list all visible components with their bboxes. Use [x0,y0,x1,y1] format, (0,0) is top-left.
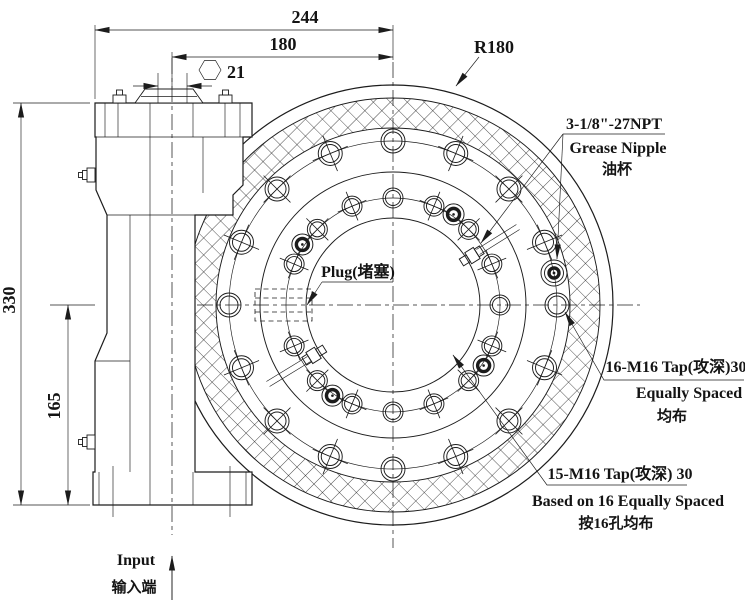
leader-plug [307,282,322,305]
cap-bolt-right [219,90,232,103]
dim-r180: R180 [474,37,514,57]
side-grease-nipple-upper [79,168,96,182]
dim-180: 180 [270,34,297,54]
input-cn-label: 输入端 [111,578,156,596]
housing-side-view [79,89,253,517]
housing-outline [93,103,252,505]
outer-tap-label-1: 16-M16 Tap(攻深)30 [606,357,745,376]
grease-spec-label: 3-1/8"-27NPT [566,116,662,133]
inner-tap-label-3: 按16孔均布 [578,514,653,532]
drawing-canvas: 244 180 21 330 165 R180 3-1/8"-27NPT Gre… [0,0,745,603]
cap-bolt-left [113,90,126,103]
dim-330: 330 [0,287,19,314]
grease-cn-label: 油杯 [602,160,633,178]
dim-244: 244 [292,7,319,27]
input-shaft-cap [135,89,203,103]
dim-165: 165 [44,393,64,420]
inner-tap-label-2: Based on 16 Equally Spaced [532,493,724,510]
outer-tap-label-3: 均布 [657,407,687,425]
technical-drawing-svg: 244 180 21 330 165 R180 3-1/8"-27NPT Gre… [0,0,745,603]
leader-r180 [456,57,479,86]
input-en-label: Input [117,552,156,569]
dim-21: 21 [227,62,245,82]
grease-en-label: Grease Nipple [569,140,666,157]
inner-tap-label-1: 15-M16 Tap(攻深) 30 [548,464,693,483]
grease-nipple-front [541,260,567,286]
side-grease-nipple-lower [79,435,96,449]
hex-symbol [199,61,221,80]
plug-label: Plug(堵塞) [321,262,395,281]
outer-tap-label-2: Equally Spaced [636,385,742,402]
